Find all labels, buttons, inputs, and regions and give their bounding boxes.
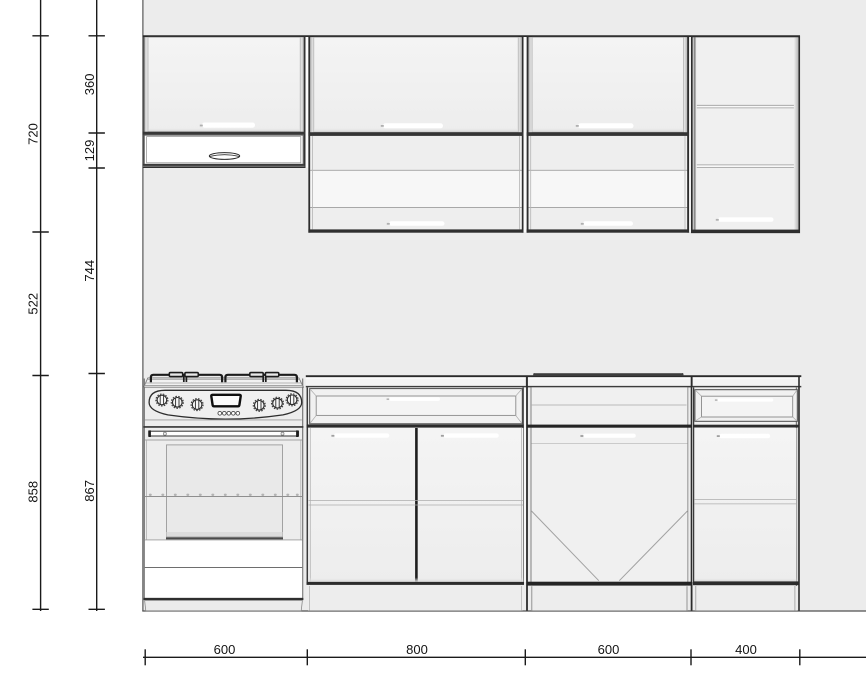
svg-text:720: 720	[26, 123, 41, 145]
svg-text:858: 858	[26, 481, 41, 503]
svg-text:744: 744	[82, 260, 97, 282]
svg-text:522: 522	[26, 293, 41, 315]
svg-text:800: 800	[406, 642, 428, 657]
svg-text:600: 600	[598, 642, 620, 657]
svg-text:360: 360	[82, 74, 97, 96]
svg-text:129: 129	[82, 140, 97, 162]
svg-text:400: 400	[735, 642, 757, 657]
svg-text:867: 867	[82, 480, 97, 502]
svg-text:600: 600	[214, 642, 236, 657]
